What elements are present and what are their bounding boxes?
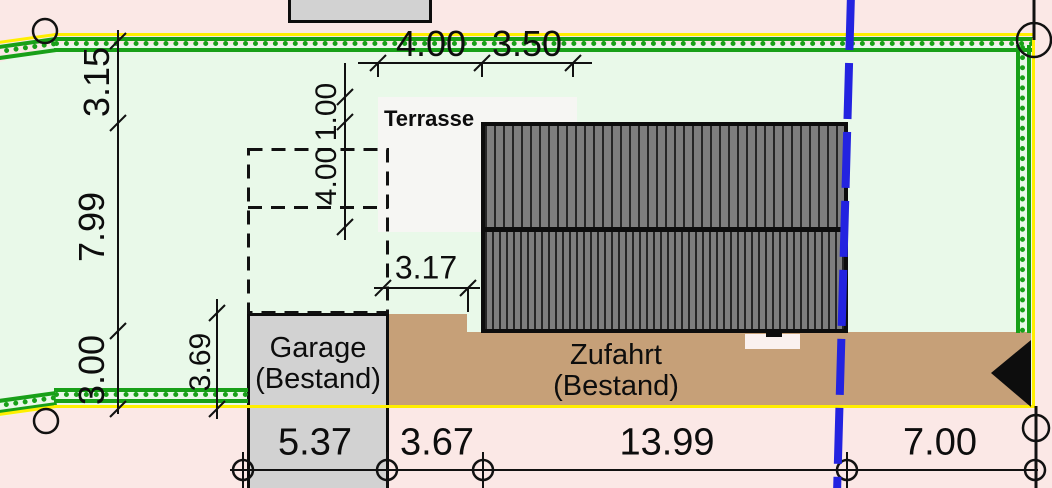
zufahrt-label: Zufahrt (Bestand) (553, 340, 679, 402)
dim-bottom-1: 5.37 (278, 422, 352, 465)
boundary-green-line (1027, 45, 1031, 333)
dim-extension-1: 1.00 (310, 83, 344, 141)
boundary-point-icon (1023, 415, 1049, 441)
dim-bottom-3: 13.99 (619, 422, 714, 465)
dim-bottom-4: 7.00 (903, 422, 977, 465)
neighbor-building (288, 0, 432, 23)
survey-point-icon (837, 460, 857, 480)
garage-label: Garage (Bestand) (255, 333, 381, 395)
dim-top-1: 4.00 (396, 23, 466, 65)
dim-gap-house: 3.17 (395, 250, 457, 287)
dim-extension-2: 4.00 (310, 147, 344, 205)
site-plan: 4.00 3.50 3.15 7.99 3.00 3.69 1.00 4.00 … (0, 0, 1052, 488)
dim-left-3: 3.00 (71, 335, 113, 405)
zufahrt-label-line1: Zufahrt (553, 340, 679, 371)
survey-point-icon (1025, 460, 1045, 480)
garage-label-line1: Garage (255, 333, 381, 364)
garage-label-line2: (Bestand) (255, 364, 381, 395)
survey-point-icon (473, 460, 493, 480)
zufahrt-label-line2: (Bestand) (553, 371, 679, 402)
boundary-yellow-line-south (54, 405, 1035, 408)
main-building-roof (481, 122, 848, 333)
roof-north-half (485, 126, 844, 227)
boundary-yellow-line-east (1032, 38, 1035, 408)
fence-post-dots (1020, 45, 1027, 333)
boundary-point-icon (34, 409, 58, 433)
dim-left-2: 7.99 (71, 192, 113, 262)
roof-south-half (485, 232, 844, 329)
entrance-door-mark (766, 330, 782, 337)
terrasse-label: Terrasse (384, 106, 474, 132)
dim-left-1: 3.15 (76, 47, 118, 117)
boundary-fence-east (1016, 45, 1031, 333)
dim-top-2: 3.50 (492, 23, 562, 65)
dim-bottom-2: 3.67 (400, 422, 474, 465)
dim-garage-depth: 3.69 (184, 333, 218, 391)
